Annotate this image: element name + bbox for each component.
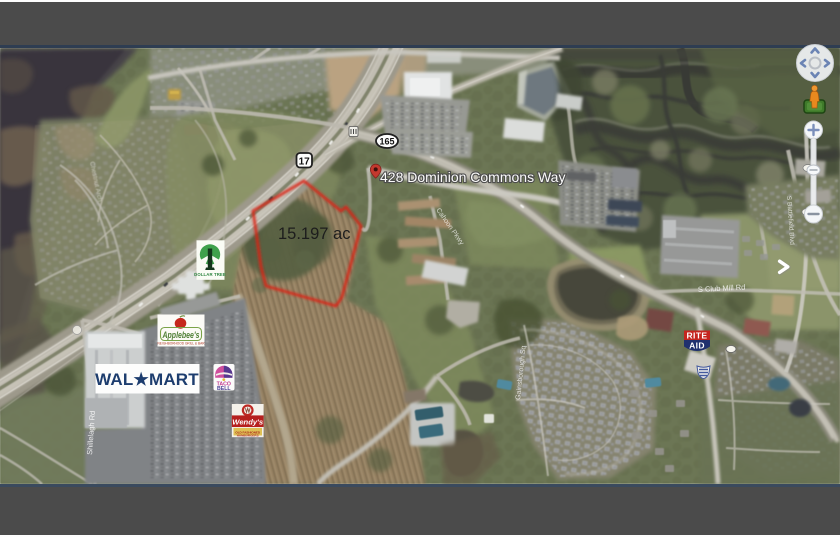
svg-text:BELL: BELL <box>217 386 231 392</box>
svg-text:DOLLAR TREE: DOLLAR TREE <box>194 272 226 277</box>
svg-text:WAL★MART: WAL★MART <box>95 370 199 389</box>
svg-text:165: 165 <box>379 137 394 147</box>
svg-text:Wendy's: Wendy's <box>232 418 263 427</box>
svg-text:15.197 ac: 15.197 ac <box>278 225 350 243</box>
svg-text:RITE: RITE <box>687 331 708 341</box>
svg-text:HAMBURGERS: HAMBURGERS <box>237 434 259 438</box>
svg-text:AID: AID <box>689 341 705 351</box>
svg-text:428 Dominion Commons Way: 428 Dominion Commons Way <box>380 169 565 185</box>
svg-text:Applebee's: Applebee's <box>162 330 200 340</box>
svg-text:17: 17 <box>299 156 311 167</box>
svg-text:NEIGHBORHOOD GRILL & BAR: NEIGHBORHOOD GRILL & BAR <box>158 341 206 345</box>
